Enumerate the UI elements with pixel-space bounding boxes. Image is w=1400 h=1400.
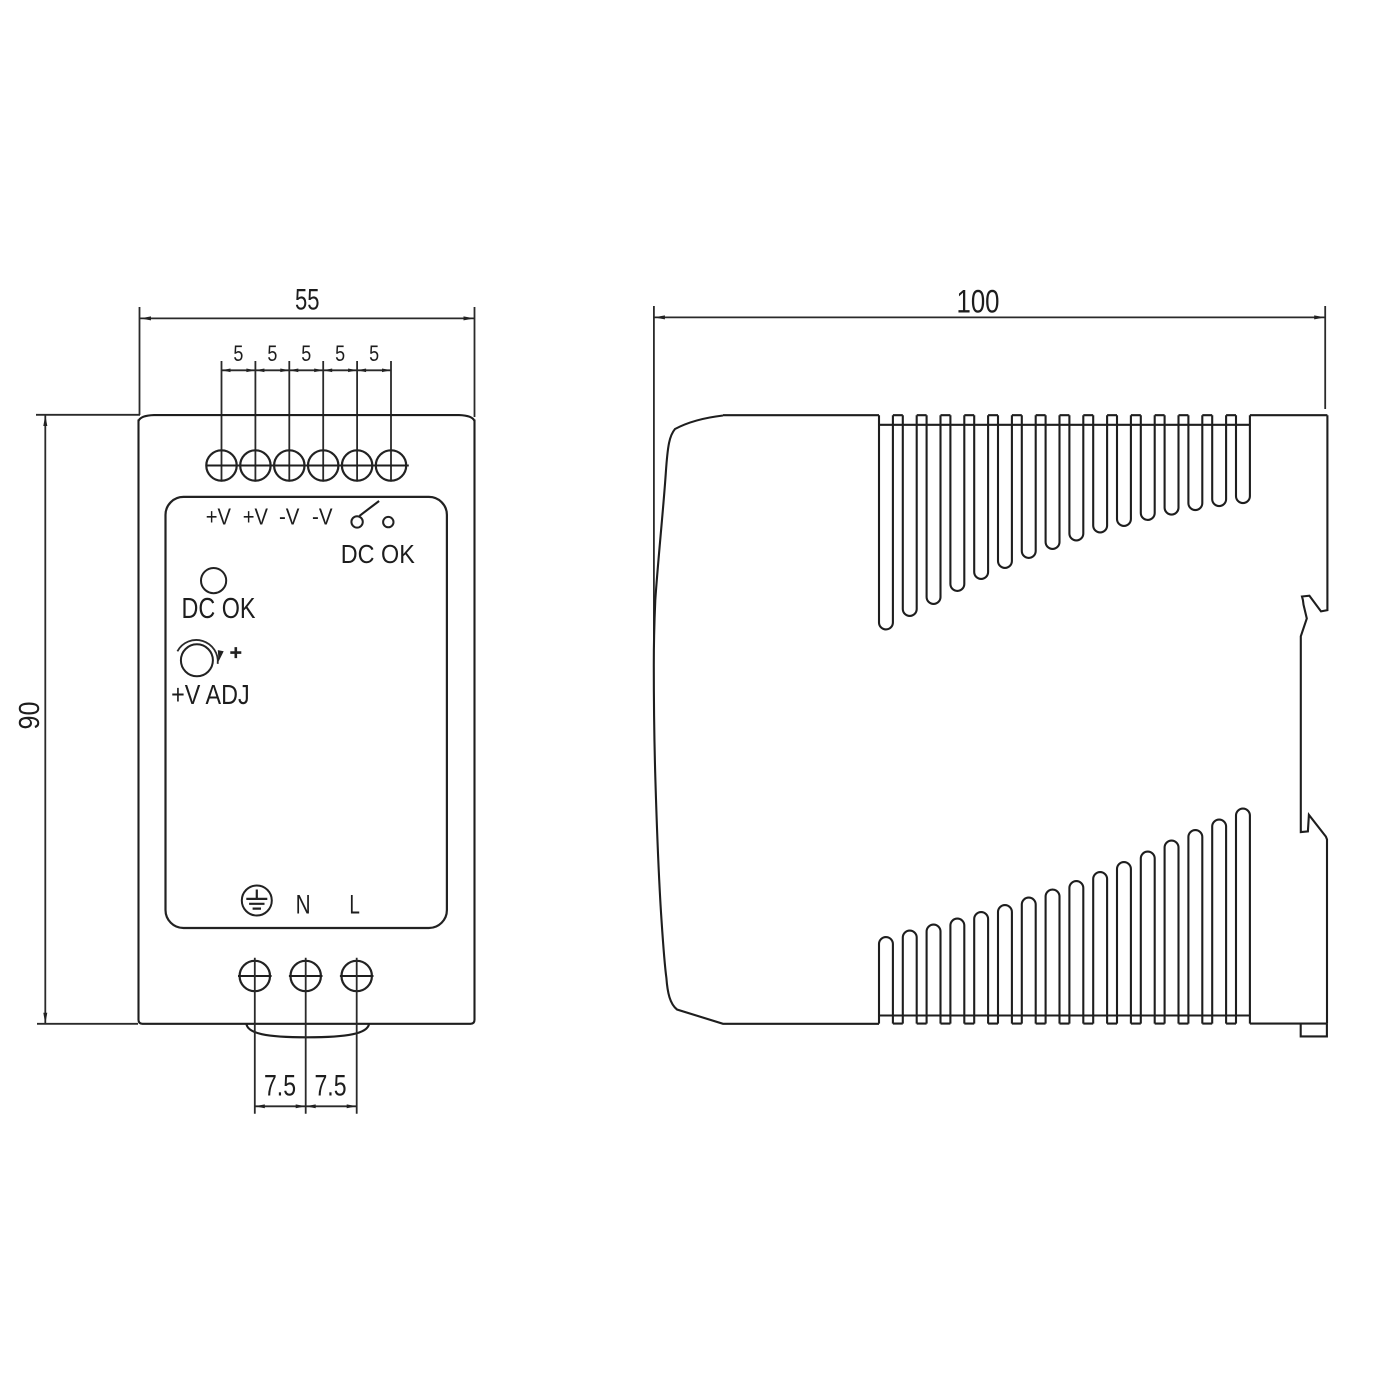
svg-text:5: 5 <box>233 341 243 366</box>
svg-text:5: 5 <box>267 341 277 366</box>
svg-text:55: 55 <box>295 284 320 317</box>
svg-text:+V: +V <box>243 504 268 530</box>
svg-text:5: 5 <box>335 341 345 366</box>
svg-text:+V: +V <box>206 504 231 530</box>
svg-text:-V: -V <box>279 504 300 530</box>
svg-text:L: L <box>349 890 360 920</box>
svg-text:+V ADJ: +V ADJ <box>171 679 250 710</box>
svg-text:90: 90 <box>14 702 46 730</box>
svg-text:DC OK: DC OK <box>182 593 256 625</box>
svg-text:DC OK: DC OK <box>341 539 416 569</box>
svg-text:5: 5 <box>369 341 379 366</box>
svg-text:5: 5 <box>301 341 311 366</box>
svg-text:-V: -V <box>312 504 333 530</box>
svg-text:100: 100 <box>957 284 1000 320</box>
svg-text:7.5: 7.5 <box>315 1070 347 1103</box>
svg-text:7.5: 7.5 <box>264 1070 296 1103</box>
svg-text:N: N <box>296 890 311 920</box>
